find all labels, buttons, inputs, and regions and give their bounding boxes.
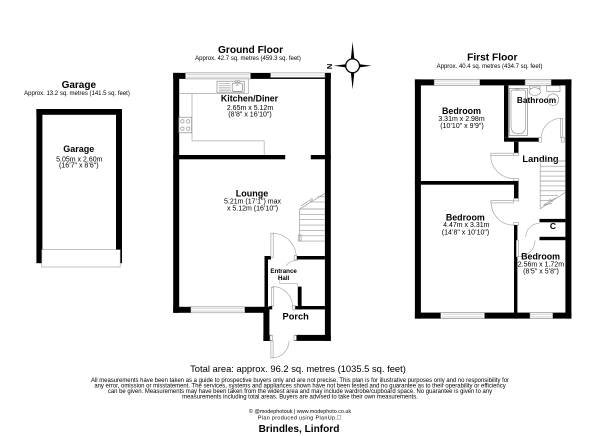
- svg-text:(10’10" x 9’9"): (10’10" x 9’9"): [440, 123, 484, 130]
- svg-text:Approx. 40.4 sq. metres (434.7: Approx. 40.4 sq. metres (434.7 sq. feet): [437, 64, 543, 70]
- svg-text:First Floor: First Floor: [467, 53, 517, 64]
- svg-text:4.47m x 3.31m: 4.47m x 3.31m: [443, 222, 489, 229]
- svg-text:Garage: Garage: [63, 144, 94, 154]
- svg-text:Lounge: Lounge: [236, 188, 269, 198]
- svg-text:Brindles, Linford: Brindles, Linford: [259, 424, 340, 435]
- svg-text:Landing: Landing: [522, 154, 558, 164]
- svg-text:Total area: approx. 96.2 sq. m: Total area: approx. 96.2 sq. metres (103…: [190, 363, 406, 374]
- svg-text:measurements including total a: measurements including total areas. Buye…: [182, 394, 418, 400]
- svg-text:N: N: [325, 64, 334, 69]
- svg-text:Plan produced using PlanUp.: Plan produced using PlanUp.: [258, 415, 337, 421]
- svg-text:5.21m (17’1") max: 5.21m (17’1") max: [224, 199, 281, 206]
- svg-text:Hall: Hall: [278, 275, 290, 282]
- svg-text:(16’7" x 8’6"): (16’7" x 8’6"): [59, 163, 99, 170]
- svg-text:(8’8" x 16’10"): (8’8" x 16’10"): [228, 112, 272, 119]
- svg-text:(14’8" x 10’10"): (14’8" x 10’10"): [442, 230, 489, 237]
- svg-text:(8’5" x 5’8"): (8’5" x 5’8"): [523, 268, 559, 275]
- svg-text:Bedroom: Bedroom: [446, 212, 485, 222]
- svg-text:Bathroom: Bathroom: [517, 95, 556, 105]
- svg-text:Ground Floor: Ground Floor: [218, 45, 283, 56]
- svg-text:Porch: Porch: [283, 311, 310, 321]
- svg-text:Bedroom: Bedroom: [442, 106, 481, 116]
- svg-text:Garage: Garage: [62, 80, 97, 91]
- svg-text:C: C: [550, 221, 556, 231]
- svg-text:Approx. 13.2 sq. metres (141.5: Approx. 13.2 sq. metres (141.5 sq. feet): [24, 91, 130, 97]
- svg-text:Entrance: Entrance: [270, 268, 297, 275]
- svg-text:Bedroom: Bedroom: [521, 252, 560, 262]
- svg-text:Approx. 42.7 sq. metres (459.3: Approx. 42.7 sq. metres (459.3 sq. feet): [195, 56, 301, 62]
- svg-text:2.56m x 1.72m: 2.56m x 1.72m: [518, 261, 564, 268]
- svg-text:Kitchen/Diner: Kitchen/Diner: [221, 93, 279, 103]
- svg-text:x 5.12m (16’10"): x 5.12m (16’10"): [227, 206, 278, 213]
- svg-text:© @modephotouk | www.modephoto: © @modephotouk | www.modephoto.co.uk: [249, 408, 352, 415]
